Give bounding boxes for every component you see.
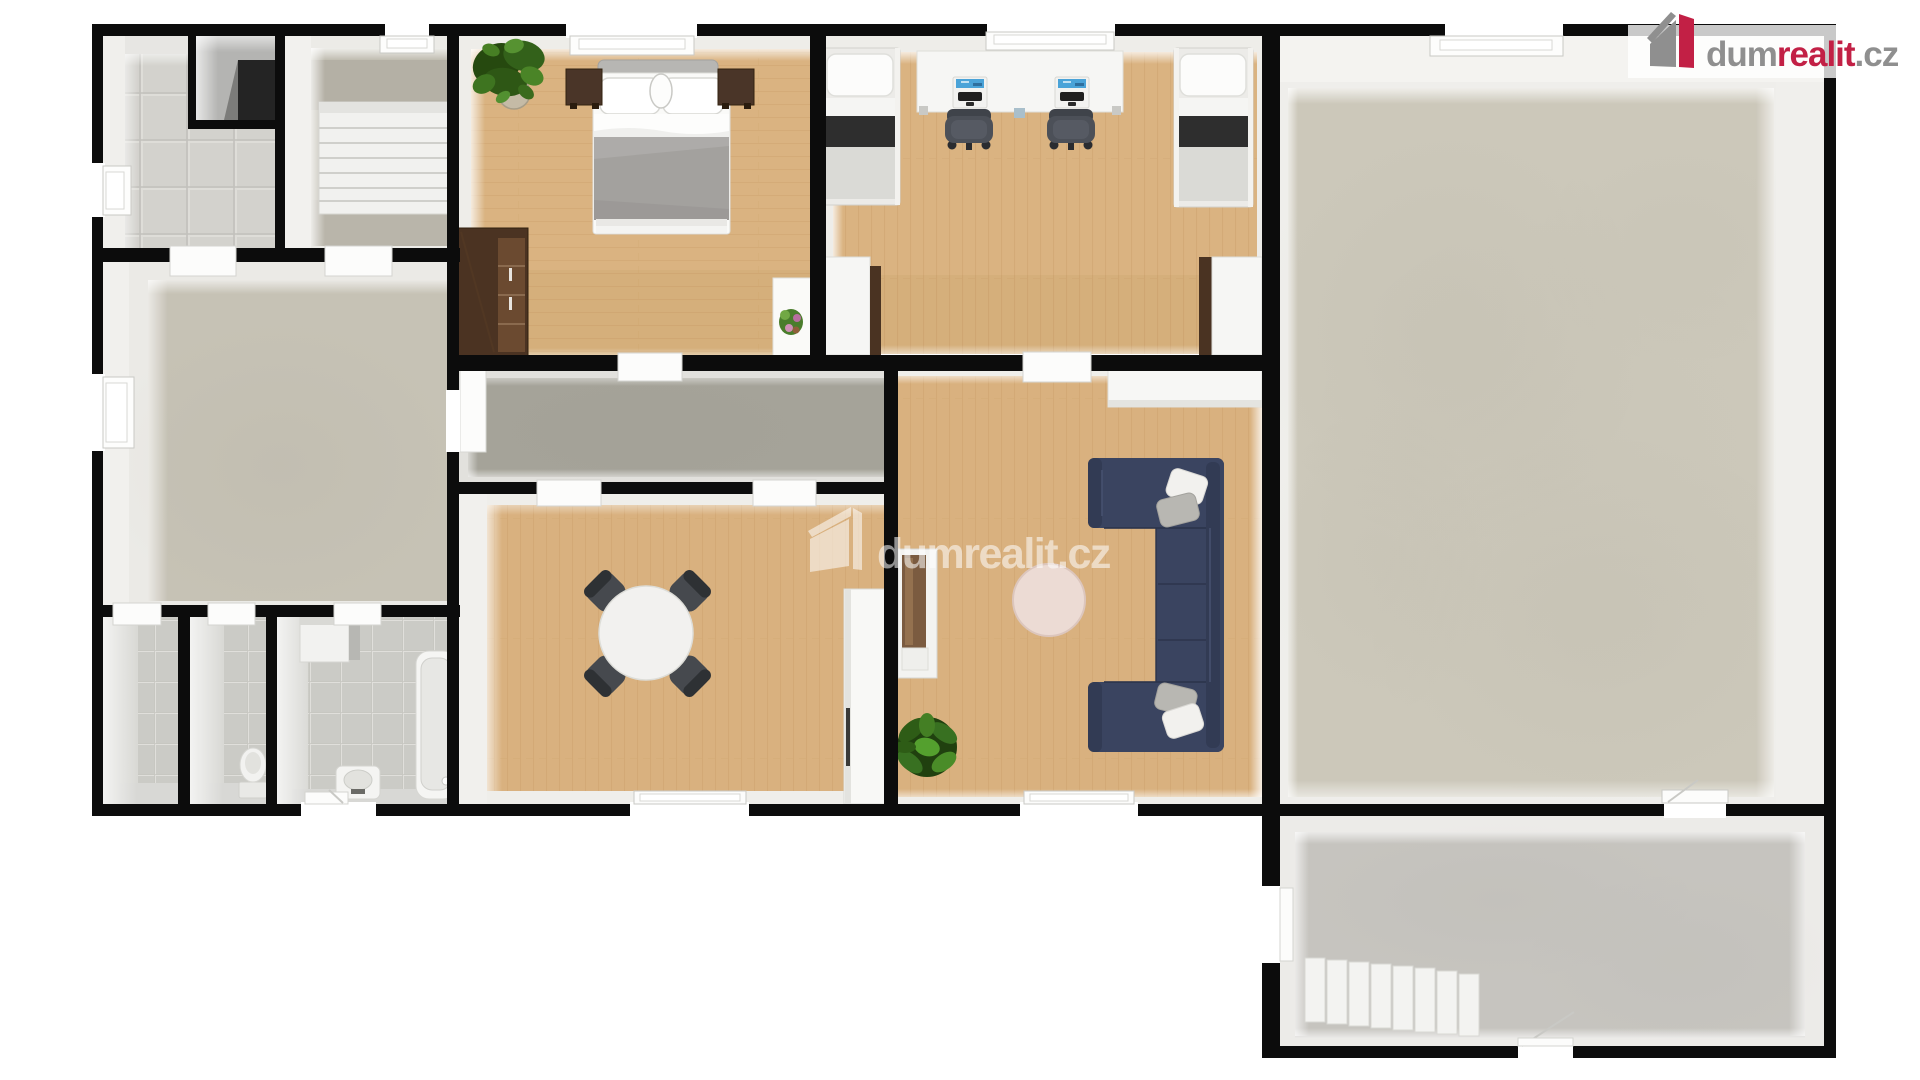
svg-text:dumrealit.cz: dumrealit.cz <box>877 530 1110 578</box>
svg-text:dumrealit.cz: dumrealit.cz <box>1706 35 1899 74</box>
